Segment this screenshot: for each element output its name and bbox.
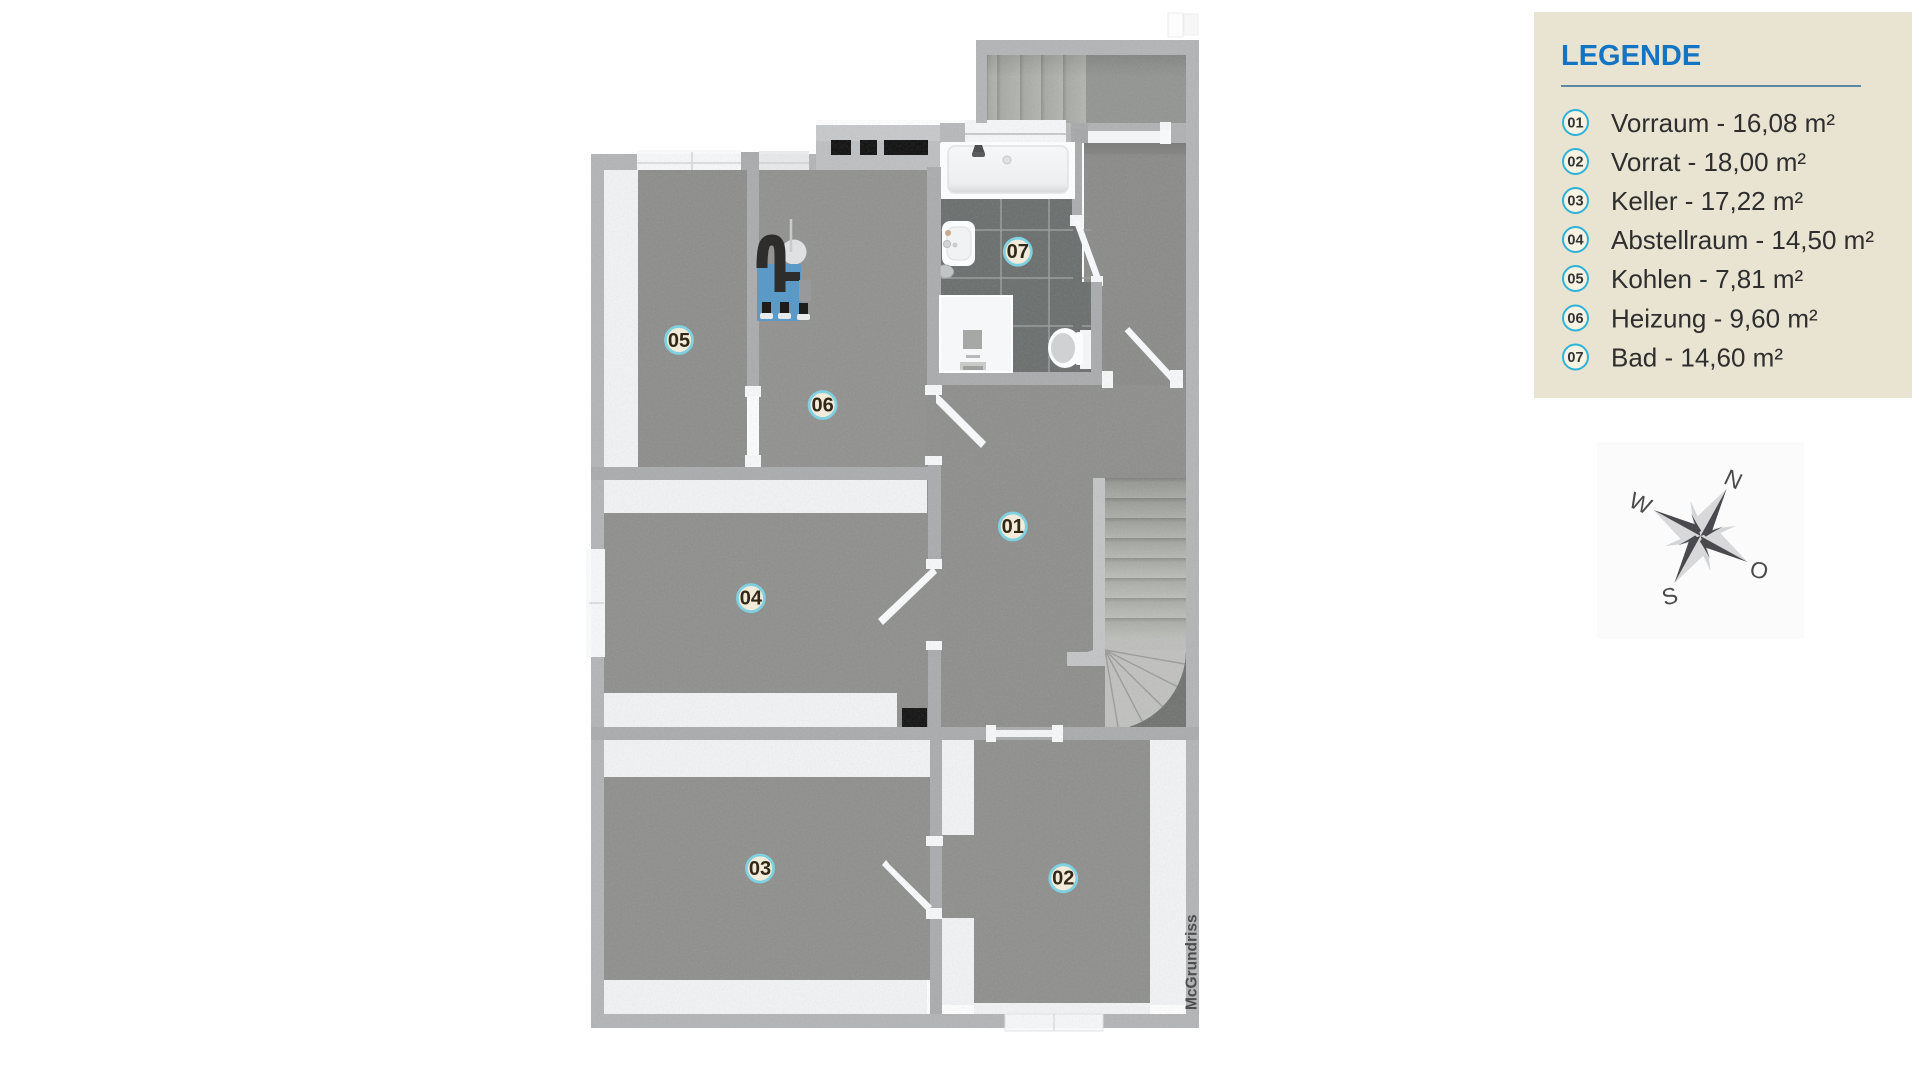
- svg-text:02: 02: [1052, 868, 1074, 890]
- svg-text:Vorraum - 16,08 m²: Vorraum - 16,08 m²: [1611, 108, 1835, 138]
- svg-text:06: 06: [1567, 311, 1583, 327]
- svg-text:Abstellraum - 14,50 m²: Abstellraum - 14,50 m²: [1611, 225, 1874, 255]
- svg-text:03: 03: [1567, 194, 1583, 210]
- svg-text:03: 03: [749, 858, 771, 880]
- svg-text:05: 05: [1567, 272, 1583, 288]
- svg-text:02: 02: [1567, 155, 1583, 171]
- svg-text:Bad - 14,60 m²: Bad - 14,60 m²: [1611, 343, 1783, 373]
- svg-text:LEGENDE: LEGENDE: [1561, 40, 1701, 72]
- svg-text:07: 07: [1567, 350, 1583, 366]
- svg-text:Vorrat - 18,00 m²: Vorrat - 18,00 m²: [1611, 147, 1806, 177]
- svg-text:Heizung - 9,60 m²: Heizung - 9,60 m²: [1611, 304, 1818, 334]
- svg-text:05: 05: [668, 330, 690, 352]
- svg-text:McGrundriss: McGrundriss: [1184, 914, 1201, 1010]
- svg-text:04: 04: [1567, 233, 1583, 249]
- svg-text:06: 06: [811, 395, 833, 417]
- svg-text:07: 07: [1007, 241, 1029, 263]
- svg-text:04: 04: [740, 588, 763, 610]
- svg-text:01: 01: [1567, 116, 1583, 132]
- svg-text:Kohlen - 7,81 m²: Kohlen - 7,81 m²: [1611, 264, 1804, 294]
- svg-text:01: 01: [1002, 516, 1024, 538]
- svg-text:Keller - 17,22 m²: Keller - 17,22 m²: [1611, 186, 1804, 216]
